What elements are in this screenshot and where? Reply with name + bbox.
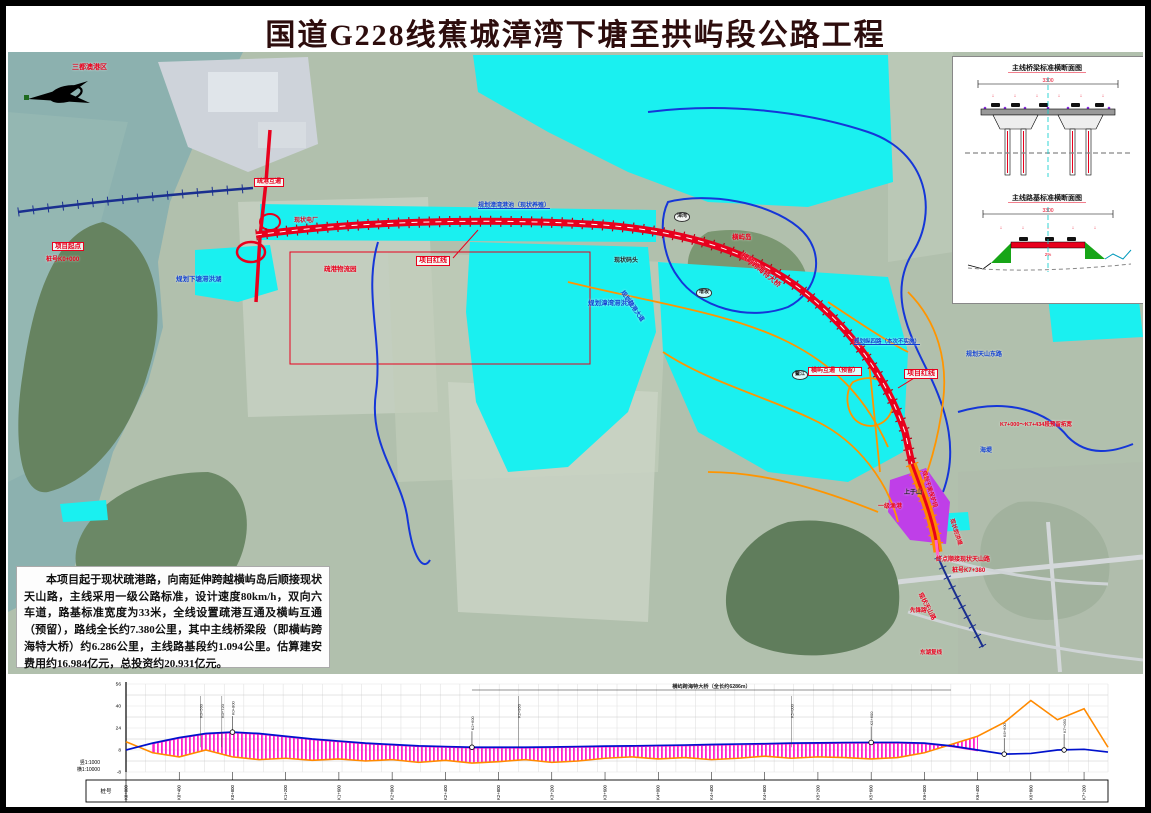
svg-text:↓: ↓	[1072, 225, 1075, 231]
svg-text:K0+800: K0+800	[230, 784, 235, 800]
map-label: 疏港物流园	[324, 266, 357, 273]
map-label: 海堤	[980, 448, 992, 455]
map-label: 先锋路	[910, 608, 927, 614]
scale-horizontal: 横1:10000	[77, 766, 100, 773]
cross-section-inset: 主线桥梁标准横断面图 3300 ↓↓↓ ↓↓↓	[952, 56, 1143, 304]
svg-text:桩号: 桩号	[100, 787, 112, 795]
svg-text:K1+600: K1+600	[336, 784, 341, 800]
scale-vertical: 竖1:1000	[80, 759, 101, 766]
bridge-section-title: 主线桥梁标准横断面图	[1012, 63, 1082, 72]
svg-text:K0+800: K0+800	[230, 700, 235, 715]
map-label: 现状码头	[614, 258, 638, 265]
map-label: 现状防洪堤	[948, 518, 962, 546]
svg-text:↓: ↓	[992, 93, 995, 99]
svg-text:↓: ↓	[1014, 93, 1017, 99]
map-label: 横屿跨海特大桥	[739, 252, 781, 289]
svg-text:↓: ↓	[1000, 225, 1003, 231]
svg-text:K5+000: K5+000	[789, 703, 794, 718]
svg-text:K2+400: K2+400	[443, 784, 448, 800]
map-label: 现状电厂	[294, 218, 318, 225]
svg-text:K4+400: K4+400	[709, 784, 714, 800]
map-label: 规划纵四路（本次不实施）	[854, 339, 920, 345]
svg-text:K5+600: K5+600	[869, 784, 874, 800]
svg-text:K6+000: K6+000	[922, 784, 927, 800]
svg-text:K6+400: K6+400	[975, 784, 980, 800]
drawing-sheet: 国道G228线蕉城漳湾下塘至拱屿段公路工程	[0, 0, 1151, 813]
svg-text:K2+000: K2+000	[390, 784, 395, 800]
map-label: 疏港互通	[254, 178, 284, 187]
page-title: 国道G228线蕉城漳湾下塘至拱屿段公路工程	[6, 10, 1145, 54]
map-label: 桩号K7+380	[952, 568, 985, 575]
svg-text:↓: ↓	[1094, 225, 1097, 231]
svg-text:K1+200: K1+200	[283, 784, 288, 800]
svg-text:K4+800: K4+800	[762, 784, 767, 800]
map-label: 横屿岛	[732, 234, 752, 241]
project-description-box: 本项目起于现状疏港路，向南延伸跨越横屿岛后顺接现状天山路，主线采用一级公路标准，…	[16, 566, 330, 668]
map-label: 桩号K0+000	[46, 257, 79, 264]
svg-text:K5+200: K5+200	[815, 784, 820, 800]
profile-y-axis: 5640248-8	[116, 682, 122, 776]
map-label: 上于山	[904, 490, 922, 497]
map-label: 一级渔港	[878, 504, 902, 511]
map-label: 漳湾	[674, 212, 690, 222]
svg-text:K2+950: K2+950	[517, 703, 522, 718]
svg-text:K3+600: K3+600	[603, 784, 608, 800]
svg-text:K6+800: K6+800	[1028, 784, 1033, 800]
svg-text:K0+000: K0+000	[124, 784, 129, 800]
map-label: 三都澳港区	[72, 64, 107, 72]
bridge-note: 横屿跨海特大桥（全长约6286m）	[672, 682, 750, 690]
svg-text:K3+200: K3+200	[549, 784, 554, 800]
map-label: 横屿互通（预留）	[808, 367, 862, 376]
svg-text:K2+800: K2+800	[496, 784, 501, 800]
map-label: 规划干渠保护段	[920, 470, 938, 508]
svg-text:56: 56	[116, 682, 122, 688]
map-label: 规划下塘滞洪湖	[176, 276, 222, 283]
map-label: 鳌江	[792, 370, 808, 380]
profile-chart[interactable]: 5640248-8竖1:1000横1:10000K0+800K2+600K5+6…	[8, 678, 1143, 805]
svg-text:↓: ↓	[1036, 93, 1039, 99]
map-label: 东湖复线	[920, 650, 942, 656]
map-label: 终点顺接现状天山路	[936, 557, 990, 564]
svg-text:↓: ↓	[1102, 93, 1105, 99]
map-label: 规划漳湾港池（现状养殖）	[478, 203, 550, 210]
svg-text:K0+400: K0+400	[177, 784, 182, 800]
map-label: 项目红线	[416, 256, 450, 266]
svg-text:K2+600: K2+600	[470, 716, 475, 731]
route-map[interactable]: 三都澳港区项目起点桩号K0+000疏港互通现状电厂疏港物流园规划下塘滞洪湖项目红…	[8, 52, 1143, 674]
svg-text:↓: ↓	[1022, 225, 1025, 231]
map-label: K7+000～K7+434段预留拓宽	[1000, 422, 1072, 428]
map-label: 项目起点	[52, 242, 84, 251]
svg-text:K7+200: K7+200	[1082, 784, 1087, 800]
svg-text:K0+560: K0+560	[199, 703, 204, 718]
svg-text:-8: -8	[117, 770, 122, 776]
stake-table: 桩号K0+000K0+400K0+800K1+200K1+600K2+000K2…	[86, 772, 1108, 802]
svg-text:40: 40	[116, 704, 122, 710]
svg-text:K5+600: K5+600	[869, 711, 874, 726]
svg-text:8: 8	[118, 748, 121, 754]
project-description-text: 本项目起于现状疏港路，向南延伸跨越横屿岛后顺接现状天山路，主线采用一级公路标准，…	[24, 572, 322, 672]
svg-text:K0+720: K0+720	[220, 703, 225, 718]
map-label: 现状天山路	[916, 592, 936, 622]
map-label: 规划天山东路	[966, 352, 1002, 359]
bridge-vehicles	[991, 103, 1104, 107]
map-label: 项目红线	[904, 369, 938, 379]
roadbed-section-title: 主线路基标准横断面图	[1012, 193, 1082, 202]
svg-text:24: 24	[116, 726, 122, 732]
svg-text:↓: ↓	[1058, 93, 1061, 99]
svg-text:K4+000: K4+000	[656, 784, 661, 800]
svg-text:↓: ↓	[1080, 93, 1083, 99]
svg-text:K7+050: K7+050	[1062, 718, 1067, 733]
roadbed-vehicles	[1019, 237, 1076, 241]
map-label: 增坂	[696, 288, 712, 298]
svg-text:K6+600: K6+600	[1002, 722, 1007, 737]
